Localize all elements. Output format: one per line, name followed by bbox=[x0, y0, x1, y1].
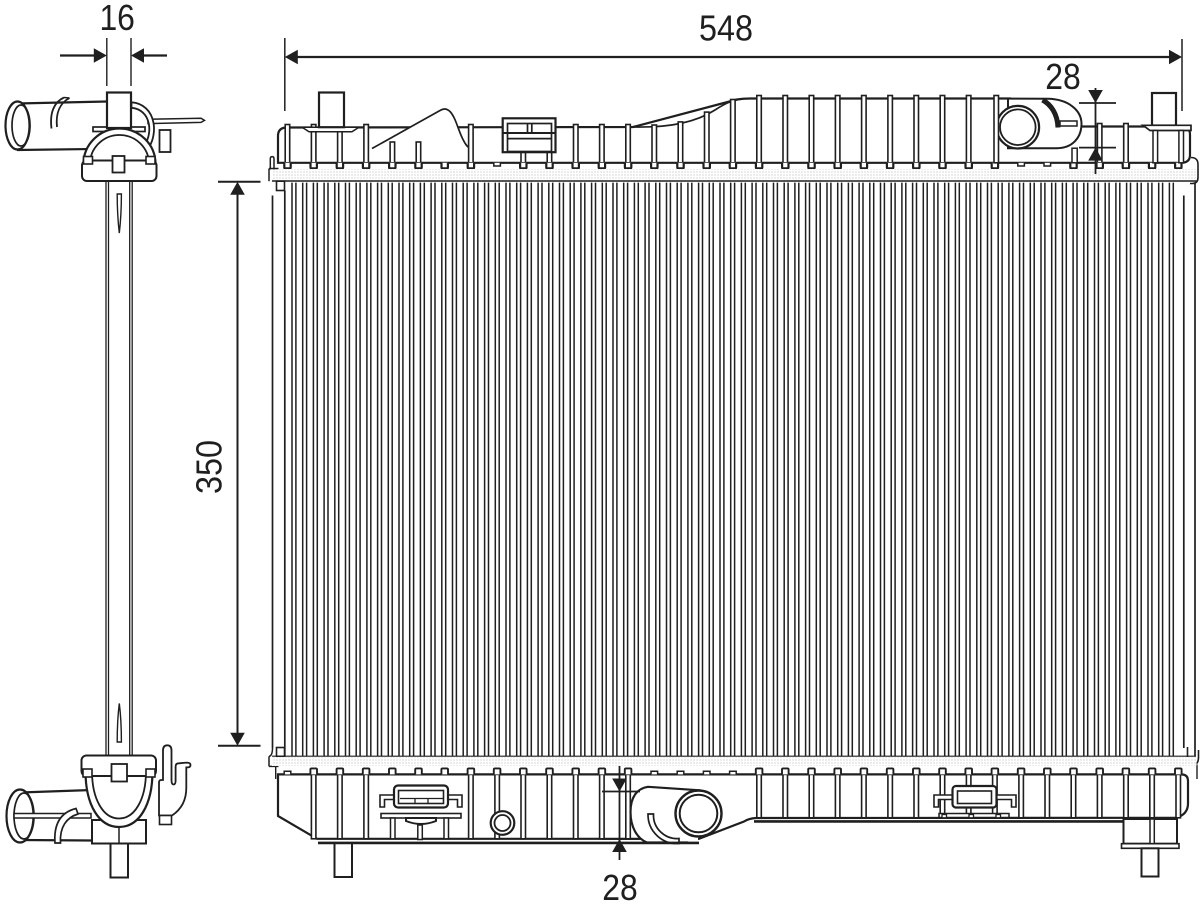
svg-text:548: 548 bbox=[699, 7, 753, 48]
svg-text:16: 16 bbox=[99, 0, 135, 38]
svg-text:350: 350 bbox=[189, 440, 230, 494]
svg-text:28: 28 bbox=[602, 867, 638, 908]
svg-text:28: 28 bbox=[1045, 56, 1081, 97]
